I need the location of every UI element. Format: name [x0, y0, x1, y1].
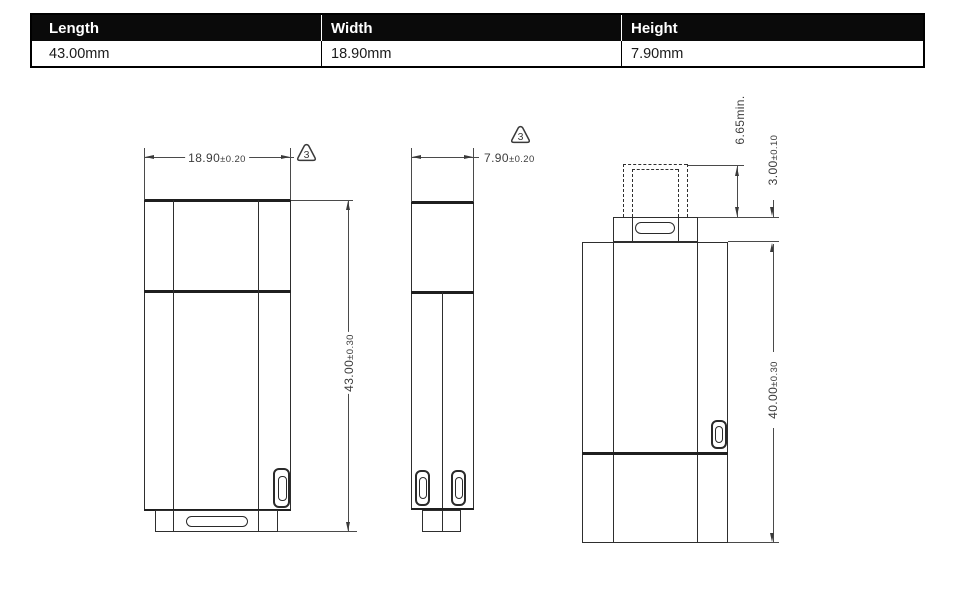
collar-dim-arrow-down — [770, 207, 774, 216]
body-dim-line-upper — [773, 244, 774, 352]
front-length-arrow-top — [346, 201, 350, 210]
collar-height-dimension: 3.00±0.10 — [766, 133, 780, 188]
side-lanyard-loop-right-inner — [455, 477, 463, 499]
rear-collar-inner-right — [678, 217, 680, 242]
collar-dim-ext-top — [698, 217, 779, 218]
front-body-outline — [144, 200, 291, 511]
front-width-arrow-left — [145, 155, 154, 159]
value-height: 7.90mm — [622, 41, 923, 66]
side-revision-triangle-icon: 3 — [510, 124, 531, 146]
table-value-row: 43.00mm 18.90mm 7.90mm — [32, 41, 923, 66]
connector-dim-arrow-bottom — [735, 207, 739, 216]
usb-connector-hidden-top-inner — [632, 169, 678, 170]
front-length-ext-bottom — [278, 531, 357, 532]
front-revision-number: 3 — [304, 149, 310, 161]
side-top-edge — [411, 201, 474, 204]
usb-connector-hidden-right-inner — [678, 169, 679, 217]
front-cap-parting-line — [144, 290, 291, 293]
front-top-edge — [144, 199, 291, 202]
connector-height-dimension: 6.65min. — [733, 93, 747, 146]
side-end-cap — [422, 510, 461, 532]
front-width-dimension: 18.90±0.20 — [185, 151, 249, 165]
front-width-ext-right — [290, 148, 291, 200]
side-thickness-arrow-right — [464, 155, 473, 159]
body-length-dimension: 40.00±0.30 — [766, 359, 780, 421]
side-thickness-arrow-left — [412, 155, 421, 159]
value-length: 43.00mm — [32, 41, 322, 66]
rear-body-outline — [582, 242, 728, 543]
front-end-cap-line-left — [173, 511, 175, 531]
usb-connector-hidden-left-outer — [623, 164, 624, 217]
value-width: 18.90mm — [322, 41, 622, 66]
body-dim-ext-bottom — [728, 542, 779, 543]
body-dim-line-lower — [773, 428, 774, 542]
rear-cap-parting-line — [582, 452, 728, 455]
rear-collar-slot — [635, 222, 675, 234]
front-length-ext-top — [291, 200, 353, 201]
table-header-row: Length Width Height — [32, 15, 923, 41]
side-lanyard-loop-left-inner — [419, 477, 427, 499]
body-dim-arrow-bottom — [770, 533, 774, 542]
side-center-split-line — [442, 292, 444, 532]
drawing-sheet: Length Width Height 43.00mm 18.90mm 7.90… — [0, 0, 953, 611]
rear-left-inner-edge — [613, 242, 615, 543]
dimensions-table: Length Width Height 43.00mm 18.90mm 7.90… — [30, 13, 925, 68]
front-length-arrow-bottom — [346, 522, 350, 531]
front-right-inner-edge — [258, 200, 260, 510]
front-width-arrow-right — [281, 155, 290, 159]
usb-connector-hidden-left-inner — [632, 169, 633, 217]
side-thickness-dimension: 7.90±0.20 — [481, 151, 538, 165]
header-width: Width — [322, 15, 622, 41]
rear-collar-inner-left — [632, 217, 634, 242]
usb-connector-hidden-right-outer — [687, 164, 688, 217]
connector-dim-arrow-top — [735, 167, 739, 176]
side-revision-number: 3 — [518, 131, 524, 143]
header-length: Length — [32, 15, 322, 41]
front-lanyard-loop-inner — [278, 476, 287, 501]
header-height: Height — [622, 15, 923, 41]
front-left-inner-edge — [173, 200, 175, 510]
rear-lanyard-loop-inner — [715, 426, 723, 443]
front-end-cap-line-right — [258, 511, 260, 531]
front-length-dimension: 43.00±0.30 — [342, 332, 356, 394]
rear-right-inner-edge — [697, 242, 699, 543]
front-revision-triangle-icon: 3 — [296, 142, 317, 164]
usb-connector-hidden-top-outer — [623, 164, 687, 165]
front-end-cap-slot — [186, 516, 248, 527]
